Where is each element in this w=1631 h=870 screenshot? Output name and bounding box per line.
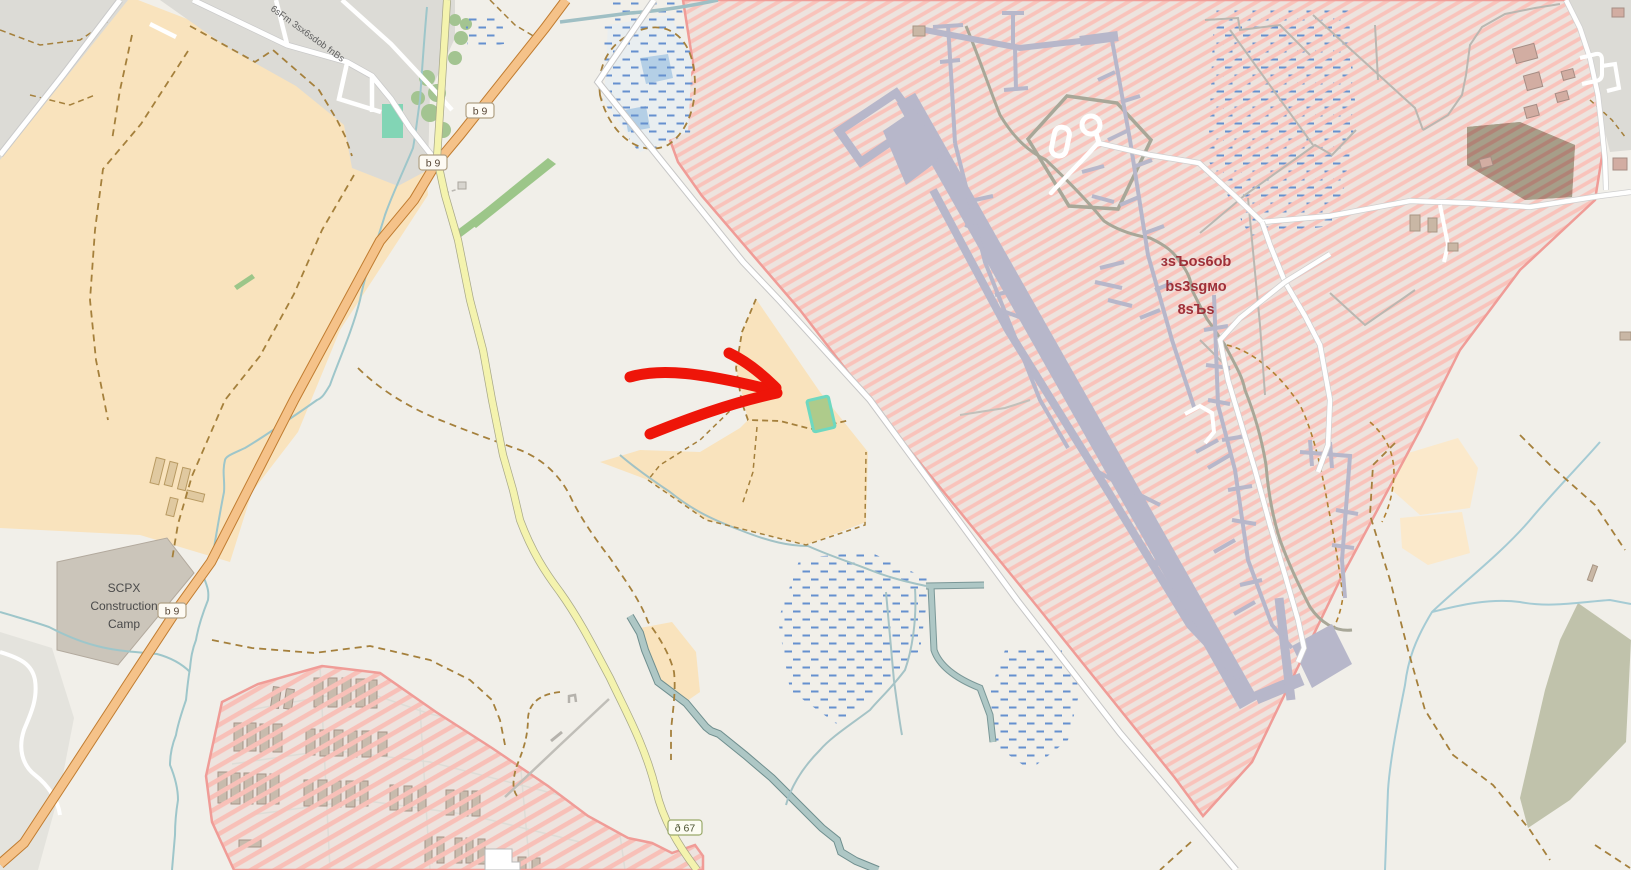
svg-text:Construction: Construction xyxy=(90,599,157,613)
svg-text:Camp: Camp xyxy=(108,617,140,631)
svg-text:b 9: b 9 xyxy=(473,106,488,118)
svg-text:b 9: b 9 xyxy=(165,606,180,618)
svg-text:ð 67: ð 67 xyxy=(675,823,696,835)
svg-text:зsЪоs6оb: зsЪоs6оb xyxy=(1161,254,1232,270)
svg-text:b 9: b 9 xyxy=(426,158,441,170)
svg-text:bs3sgмо: bs3sgмо xyxy=(1165,279,1226,295)
svg-text:8sЪs: 8sЪs xyxy=(1178,302,1215,318)
svg-text:SCPX: SCPX xyxy=(108,581,141,595)
